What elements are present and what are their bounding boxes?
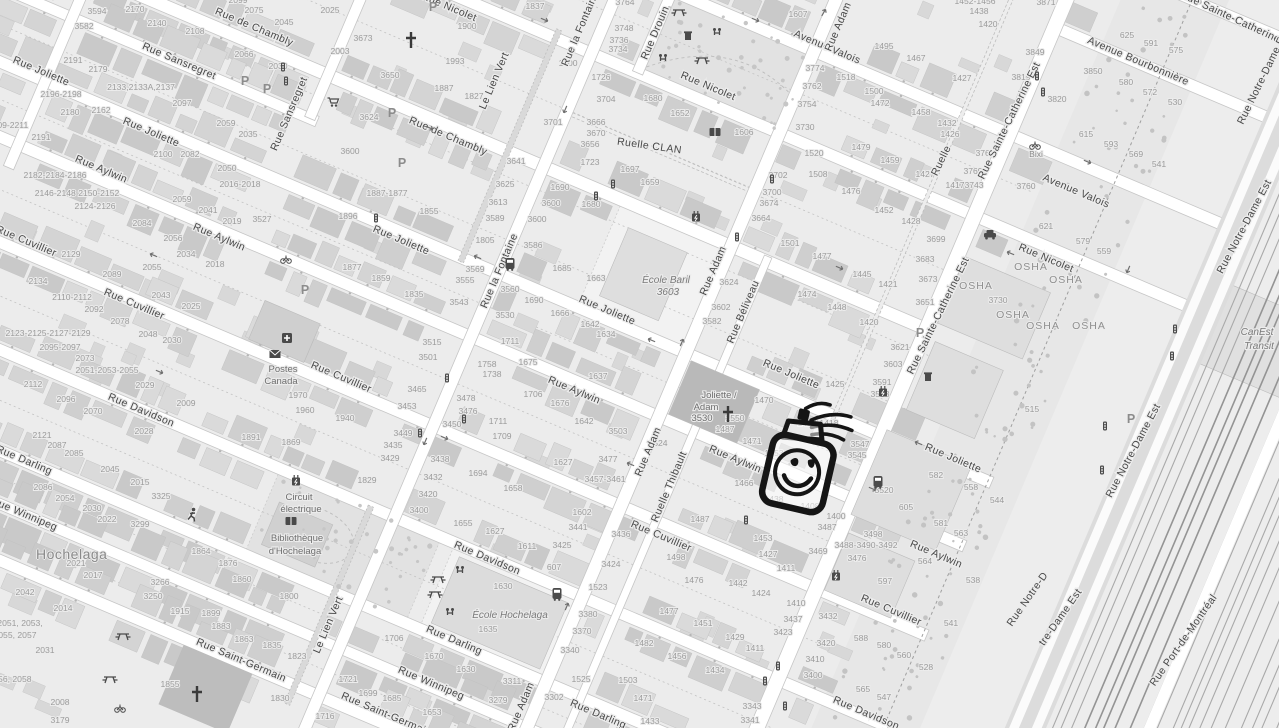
house-number: 1899 <box>201 608 220 618</box>
taxi-wheel <box>985 237 988 240</box>
house-number: 2134 <box>28 276 47 286</box>
house-number: 3515 <box>422 337 441 347</box>
house-number: 3435 <box>383 440 402 450</box>
trash-bin <box>925 374 931 381</box>
traffic-icon <box>735 233 739 242</box>
house-number: 1709 <box>492 431 511 441</box>
house-number: 1420 <box>978 19 997 29</box>
house-number: 1500 <box>864 86 883 96</box>
traffic-lamp <box>1104 428 1106 430</box>
house-number: 3624 <box>719 277 738 287</box>
poi-label: Postes <box>268 364 297 375</box>
poi-label: CanEst <box>1241 327 1275 338</box>
house-number: 1993 <box>445 56 464 66</box>
house-number: 1666 <box>550 308 569 318</box>
house-number: 1459 <box>880 155 899 165</box>
house-number: 3266 <box>150 577 169 587</box>
house-number: 3820 <box>1047 94 1066 104</box>
house-number: 1627 <box>553 457 572 467</box>
house-number: 625 <box>1120 30 1135 40</box>
house-number: 1442 <box>728 578 747 588</box>
parking-icon: P <box>916 326 924 340</box>
house-number: 3302 <box>544 692 563 702</box>
traffic-lamp <box>1104 423 1106 425</box>
house-number: 591 <box>1144 38 1159 48</box>
house-number: 1896 <box>338 211 357 221</box>
house-number: 1471 <box>742 436 761 446</box>
house-number: 1429 <box>725 632 744 642</box>
house-number: 3438 <box>430 454 449 464</box>
poi-label: OSHA <box>1026 320 1060 332</box>
bus-wheel <box>554 599 556 601</box>
house-number: 2041 <box>198 205 217 215</box>
poi-label: Joliette / <box>701 390 737 401</box>
house-number: 2092 <box>84 304 103 314</box>
house-number: 3569 <box>465 264 484 274</box>
house-number: 2146-2148 2150-2152 <box>35 188 120 198</box>
traffic-lamp <box>1036 73 1038 75</box>
house-number: 1607 <box>788 9 807 19</box>
traffic-lamp <box>745 517 747 519</box>
house-number: 1630 <box>456 664 475 674</box>
house-number: 3625 <box>495 179 514 189</box>
house-number: 2016-2018 <box>219 179 260 189</box>
poi-label: OSHA <box>1049 274 1083 286</box>
house-number: 2191 <box>31 132 50 142</box>
house-number: 2050 <box>217 163 236 173</box>
map-viewport[interactable]: Hochelaga 359435822170214021082099207520… <box>0 0 1279 728</box>
house-number: 530 <box>1168 97 1183 107</box>
house-number: 3420 <box>816 638 835 648</box>
house-number: 2073 <box>75 353 94 363</box>
bus-wheel <box>511 269 513 271</box>
house-number: 3487 <box>817 522 836 532</box>
traffic-lamp <box>419 432 421 434</box>
house-number: 1876 <box>218 558 237 568</box>
house-number: 1659 <box>640 177 659 187</box>
parking-icon: P <box>1127 412 1135 426</box>
house-number: 3488-3490-3492 <box>834 540 897 550</box>
house-number: 1448 <box>827 302 846 312</box>
house-number: 597 <box>878 576 893 586</box>
map-canvas[interactable]: 3594358221702140210820992075204520252066… <box>0 0 1279 728</box>
house-number: 3250 <box>143 591 162 601</box>
house-number: 1960 <box>295 405 314 415</box>
house-number: 1417 <box>945 180 964 190</box>
house-number: 3582 <box>702 316 721 326</box>
house-number: 569 <box>1129 149 1144 159</box>
house-number: 1758 <box>477 359 496 369</box>
traffic-icon <box>462 415 466 424</box>
parking-icon: P <box>263 82 271 96</box>
traffic-lamp <box>1101 472 1103 474</box>
house-number: 2196-2198 <box>40 89 81 99</box>
house-number: 3624 <box>359 112 378 122</box>
house-number: 1883 <box>211 621 230 631</box>
house-number: 3343 <box>742 701 761 711</box>
house-number: 3543 <box>449 297 468 307</box>
house-number: 1829 <box>357 475 376 485</box>
traffic-lamp <box>1171 353 1173 355</box>
house-number: 541 <box>944 618 959 628</box>
person <box>446 608 449 611</box>
house-number: 3602 <box>711 302 730 312</box>
house-number: 1602 <box>572 507 591 517</box>
trash-lid <box>684 31 692 33</box>
firstaid-icon <box>282 333 292 343</box>
poi-label: OSHA <box>996 309 1030 321</box>
house-number: 1680 <box>643 93 662 103</box>
house-number: 2085 <box>64 448 83 458</box>
traffic-icon <box>284 77 288 86</box>
poi-label: Adam <box>694 402 719 413</box>
house-number: 2089 <box>102 269 121 279</box>
house-number: 2078 <box>110 316 129 326</box>
house-number: 2025 <box>181 301 200 311</box>
poi-label: École Baril <box>642 273 691 286</box>
house-number: 1711 <box>489 416 508 426</box>
house-number: 1400 <box>826 511 845 521</box>
house-number: 621 <box>1039 221 1054 231</box>
house-number: 3325 <box>151 491 170 501</box>
person <box>713 28 716 31</box>
house-number: 3774 <box>805 63 824 73</box>
house-number: 2095-2097 <box>39 342 80 352</box>
house-number: 563 <box>954 528 969 538</box>
house-number: 2025 <box>320 5 339 15</box>
traffic-lamp <box>612 183 614 185</box>
book-icon <box>710 128 721 136</box>
bus-window <box>875 478 881 481</box>
house-number: 3670 <box>586 128 605 138</box>
house-number: 3603 <box>883 359 902 369</box>
house-number: 2030 <box>82 503 101 513</box>
traffic-lamp <box>1042 91 1044 93</box>
house-number: 3179 <box>50 715 69 725</box>
house-number: 1627 <box>485 526 504 536</box>
traffic-icon <box>374 214 378 223</box>
traffic-lamp <box>1171 358 1173 360</box>
poi-label: d'Hochelaga <box>269 546 322 557</box>
house-number: 3400 <box>409 505 428 515</box>
house-number: 558 <box>964 482 979 492</box>
house-number: 1476 <box>684 575 703 585</box>
house-number: 3429 <box>380 453 399 463</box>
house-number: 1887 <box>434 83 453 93</box>
house-number: 1523 <box>588 582 607 592</box>
house-number: 1630 <box>493 581 512 591</box>
house-number: 2129 <box>61 249 80 259</box>
house-number: 2075 <box>244 5 263 15</box>
house-number: 2086 <box>33 482 52 492</box>
house-number: 3469 <box>808 546 827 556</box>
house-number: 588 <box>854 633 869 643</box>
traffic-icon <box>763 677 767 686</box>
house-number: 1466 <box>734 478 753 488</box>
house-number: 3754 <box>797 99 816 109</box>
house-number: 1970 <box>288 390 307 400</box>
poi-label: Circuit <box>286 492 313 503</box>
house-number: 3762 <box>802 81 821 91</box>
traffic-lamp <box>764 678 766 680</box>
house-number: 3432 <box>423 472 442 482</box>
house-number: 2097 <box>172 98 191 108</box>
house-number: 3699 <box>926 234 945 244</box>
house-number: 1635 <box>478 624 497 634</box>
house-number: 1411 <box>777 563 796 573</box>
house-number: 1830 <box>270 693 289 703</box>
house-number: 1723 <box>580 157 599 167</box>
poi-label: 3530 <box>691 413 712 424</box>
traffic-lamp <box>612 181 614 183</box>
traffic-lamp <box>745 522 747 524</box>
house-number: 1426 <box>940 129 959 139</box>
house-number: 515 <box>1025 404 1040 414</box>
traffic-lamp <box>1174 326 1176 328</box>
house-number: 1915 <box>170 606 189 616</box>
house-number: 1721 <box>338 674 357 684</box>
house-number: 3748 <box>614 23 633 33</box>
house-number: 3441 <box>568 522 587 532</box>
traffic-lamp <box>784 703 786 705</box>
house-number: 3582 <box>74 21 93 31</box>
house-number: 1655 <box>453 518 472 528</box>
house-number: 1653 <box>422 707 441 717</box>
traffic-lamp <box>1174 331 1176 333</box>
house-number: 3704 <box>596 94 615 104</box>
traffic-lamp <box>771 176 773 178</box>
traffic-lamp <box>375 215 377 217</box>
bus-window <box>507 260 513 263</box>
house-number: 1425 <box>825 379 844 389</box>
house-number: 1420 <box>859 317 878 327</box>
house-number: 3503 <box>608 426 627 436</box>
traffic-lamp <box>771 181 773 183</box>
parking-icon: P <box>1127 412 1135 426</box>
house-number: 1424 <box>751 588 770 598</box>
house-number: 1467 <box>906 53 925 63</box>
house-number: 1477 <box>659 606 678 616</box>
house-number: 1670 <box>424 651 443 661</box>
house-number: 3600 <box>527 214 546 224</box>
parking-icon: P <box>301 283 309 297</box>
house-number: 572 <box>1143 87 1158 97</box>
house-number: 3476 <box>847 553 866 563</box>
house-number: 1706 <box>384 633 403 643</box>
house-number: 2045 <box>100 464 119 474</box>
house-number: 3555 <box>455 275 474 285</box>
traffic-lamp <box>777 668 779 670</box>
house-number: 2043 <box>151 290 170 300</box>
house-number: 2056 <box>163 233 182 243</box>
poi-label: École Hochelaga <box>472 608 548 621</box>
traffic-lamp <box>784 705 786 707</box>
traffic-lamp <box>285 78 287 80</box>
house-number: 1800 <box>279 591 298 601</box>
house-number: 1445 <box>852 269 871 279</box>
house-number: 1706 <box>523 389 542 399</box>
house-number: 1940 <box>335 413 354 423</box>
house-number: 2034 <box>176 249 195 259</box>
parking-icon: P <box>241 74 249 88</box>
traffic-icon <box>1041 88 1045 97</box>
house-number: 1859 <box>371 273 390 283</box>
trash-icon <box>684 31 692 40</box>
traffic-lamp <box>282 69 284 71</box>
traffic-icon <box>594 192 598 201</box>
person <box>456 566 459 569</box>
house-number: 3527 <box>252 214 271 224</box>
house-number: 2030 <box>162 335 181 345</box>
house-number: 1458 <box>911 107 930 117</box>
house-number: 3700 <box>762 187 781 197</box>
house-number: 3425 <box>552 540 571 550</box>
house-number: 3450 <box>442 419 461 429</box>
house-number: 3311 <box>503 676 522 686</box>
house-number: 1694 <box>468 468 487 478</box>
house-number: 1864 <box>191 546 210 556</box>
house-number: 3498 <box>863 529 882 539</box>
house-number: 3594 <box>87 6 106 16</box>
house-number: 3547 <box>850 439 869 449</box>
traffic-lamp <box>375 220 377 222</box>
traffic-icon <box>1170 352 1174 361</box>
house-number: 580 <box>877 640 892 650</box>
house-number: 2084 <box>132 218 151 228</box>
house-number: 1637 <box>588 371 607 381</box>
parking-icon: P <box>301 283 309 297</box>
house-number: 580 <box>1119 77 1134 87</box>
house-number: 1658 <box>503 483 522 493</box>
house-number: 3849 <box>1025 47 1044 57</box>
house-number: 3530 <box>495 310 514 320</box>
poi-label: OSHA <box>1072 320 1106 332</box>
house-number: 1716 <box>315 711 334 721</box>
house-number: 2009 <box>176 398 195 408</box>
house-number: 3664 <box>751 213 770 223</box>
house-number: 2008 <box>50 697 69 707</box>
parking-icon: P <box>429 0 437 14</box>
house-number: 3600 <box>340 146 359 156</box>
house-number: 3400 <box>803 670 822 680</box>
traffic-lamp <box>595 193 597 195</box>
taxi-cabin <box>987 230 994 234</box>
house-number: 2059 <box>216 118 235 128</box>
house-number: 3730 <box>795 122 814 132</box>
house-number: 3420 <box>418 489 437 499</box>
house-number: 1652 <box>670 108 689 118</box>
house-number: 2179 <box>88 64 107 74</box>
traffic-lamp <box>745 519 747 521</box>
traffic-lamp <box>736 239 738 241</box>
house-number: 1427 <box>952 73 971 83</box>
house-number: 1428 <box>901 216 920 226</box>
traffic-icon <box>1173 325 1177 334</box>
house-number: 3589 <box>485 213 504 223</box>
parking-icon: P <box>916 326 924 340</box>
bus-body <box>553 588 562 599</box>
traffic-icon <box>1100 466 1104 475</box>
house-number: 615 <box>1079 129 1094 139</box>
person <box>718 28 721 31</box>
house-number: 2070 <box>83 406 102 416</box>
house-number: 2015 <box>130 477 149 487</box>
house-number: 2045 <box>274 17 293 27</box>
house-number: 2100 <box>153 149 172 159</box>
house-number: 1427 <box>758 549 777 559</box>
house-number: 3449 <box>393 428 412 438</box>
person <box>461 566 464 569</box>
house-number: 2112 <box>24 379 43 389</box>
traffic-icon <box>445 374 449 383</box>
house-number: 1676 <box>550 398 569 408</box>
bus-body <box>506 258 515 269</box>
house-number: 3734 <box>608 44 627 54</box>
traffic-lamp <box>1174 328 1176 330</box>
house-number: 2051-2053-2055 <box>75 365 138 375</box>
house-number: 547 <box>877 692 892 702</box>
house-number: 1487 <box>690 514 709 524</box>
house-number: 1835 <box>404 289 423 299</box>
house-number: 1887-1877 <box>366 188 407 198</box>
house-number: 3436 <box>611 529 630 539</box>
house-number: 1663 <box>586 273 605 283</box>
house-number: 593 <box>1104 139 1119 149</box>
house-number: 3279 <box>488 695 507 705</box>
traffic-lamp <box>285 80 287 82</box>
house-number: 1434 <box>705 665 724 675</box>
house-number: 3651 <box>915 297 934 307</box>
traffic-lamp <box>282 66 284 68</box>
house-number: 3760 <box>1016 181 1035 191</box>
traffic-icon <box>776 662 780 671</box>
house-number: 1451 <box>693 618 712 628</box>
house-number: 3380 <box>578 609 597 619</box>
spray-body <box>760 432 836 514</box>
house-number: 1738 <box>482 369 501 379</box>
house-number: 2123-2125-2127-2129 <box>5 328 90 338</box>
poi-label: Bixi <box>1029 149 1043 159</box>
house-number: 2035 <box>238 129 257 139</box>
traffic-lamp <box>375 217 377 219</box>
house-number: 1685 <box>382 693 401 703</box>
house-number: 1823 <box>287 651 306 661</box>
house-number: 528 <box>919 662 934 672</box>
traffic-lamp <box>285 83 287 85</box>
poi-label: OSHA <box>1014 261 1048 273</box>
traffic-lamp <box>771 178 773 180</box>
trash-icon <box>924 372 932 381</box>
house-number: 3673 <box>353 33 372 43</box>
house-number: 3666 <box>586 117 605 127</box>
traffic-lamp <box>1042 94 1044 96</box>
traffic-lamp <box>736 234 738 236</box>
house-number: 3465 <box>407 384 426 394</box>
house-number: 1726 <box>591 72 610 82</box>
traffic-lamp <box>446 377 448 379</box>
house-number: 1495 <box>874 41 893 51</box>
house-number: 2014 <box>53 603 72 613</box>
house-number: 2029 <box>135 380 154 390</box>
bus-window <box>554 590 560 593</box>
house-number: 2121 <box>32 430 51 440</box>
traffic-lamp <box>764 683 766 685</box>
house-number: 3410 <box>805 654 824 664</box>
house-number: 1498 <box>666 552 685 562</box>
bus-wheel <box>879 487 881 489</box>
house-number: 1863 <box>234 634 253 644</box>
house-number: 3656 <box>580 139 599 149</box>
